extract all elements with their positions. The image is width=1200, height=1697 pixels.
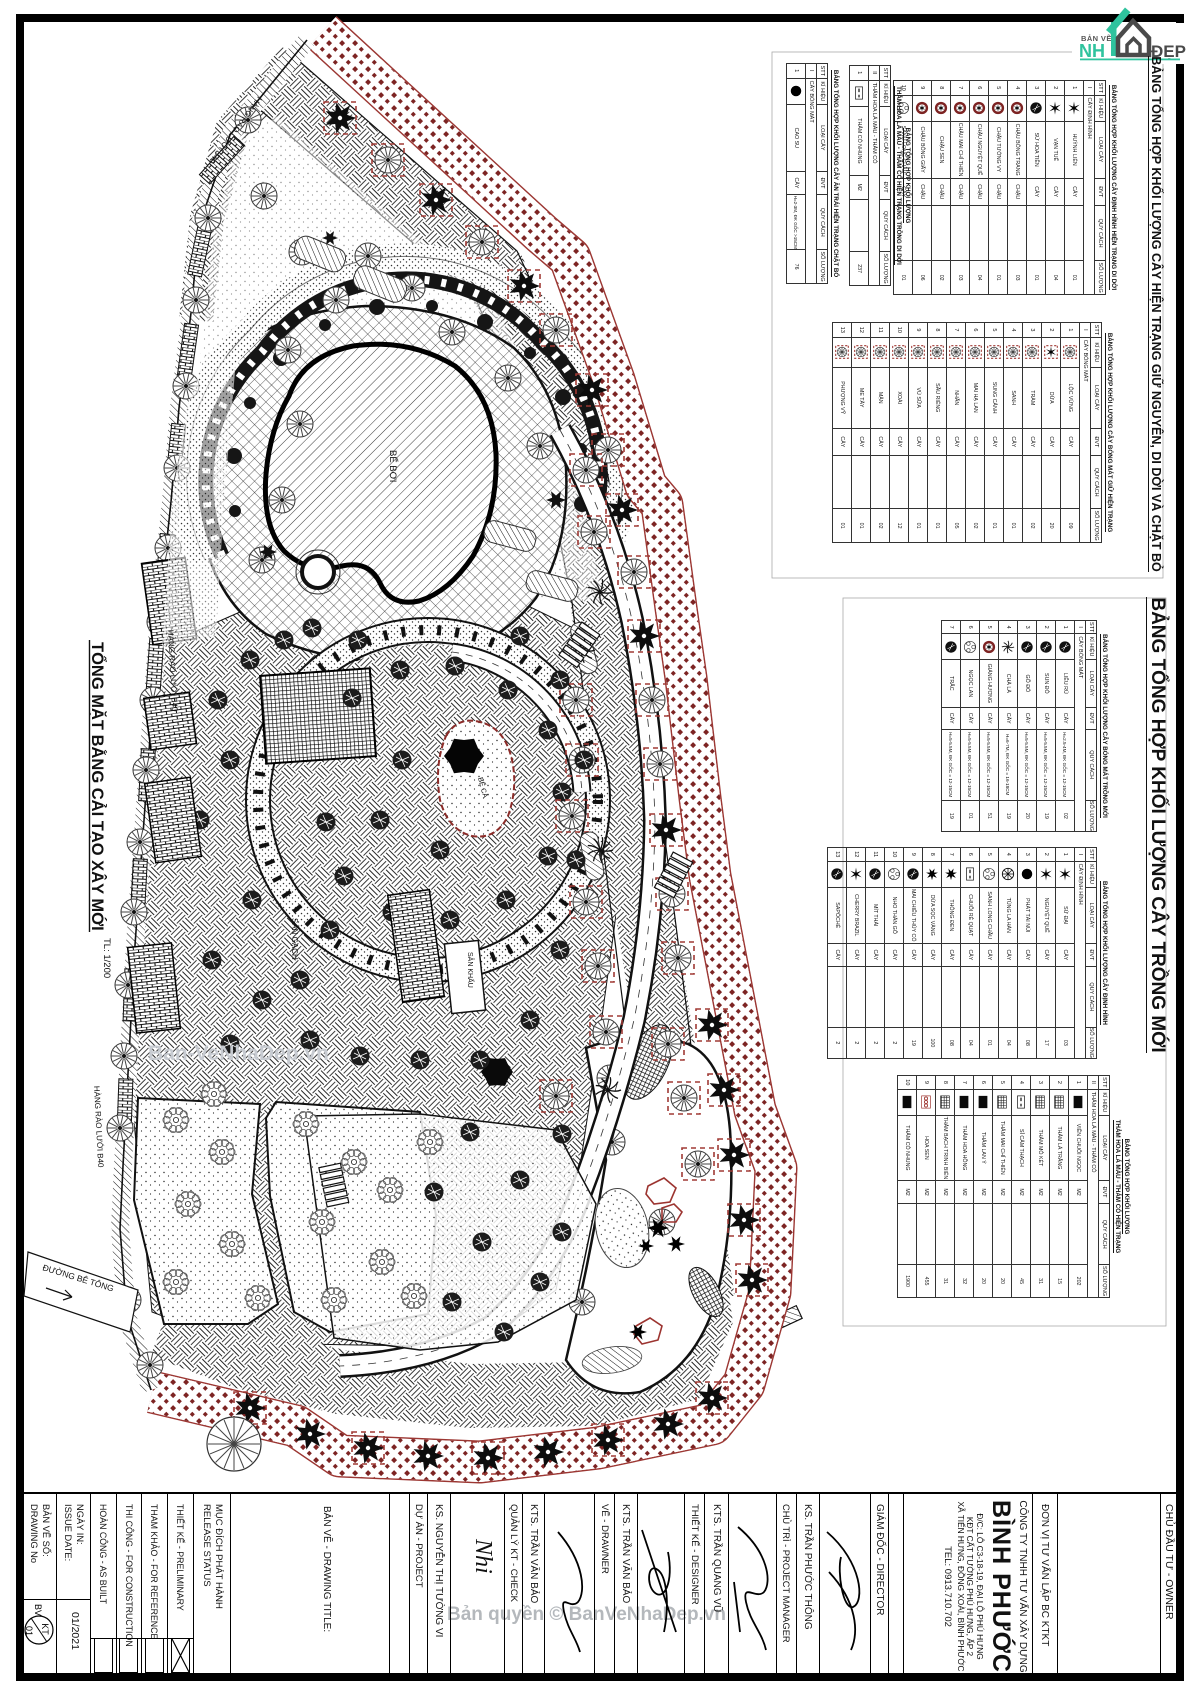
svg-text:Ban-VeNhaDep.vn: Ban-VeNhaDep.vn — [148, 1042, 329, 1065]
svg-text:01: 01 — [24, 1626, 34, 1636]
svg-text:SÂN GẠCH: SÂN GẠCH — [290, 918, 299, 960]
svg-text:KT: KT — [40, 1623, 50, 1635]
svg-text:TỔNG MẶT BẰNG CẢI TẠO XÂY MỚI: TỔNG MẶT BẰNG CẢI TẠO XÂY MỚI — [88, 642, 107, 931]
svg-text:BV: BV — [33, 1604, 43, 1616]
svg-text:BỂ BƠI: BỂ BƠI — [387, 450, 399, 482]
svg-text:TL: 1/200: TL: 1/200 — [101, 938, 112, 978]
